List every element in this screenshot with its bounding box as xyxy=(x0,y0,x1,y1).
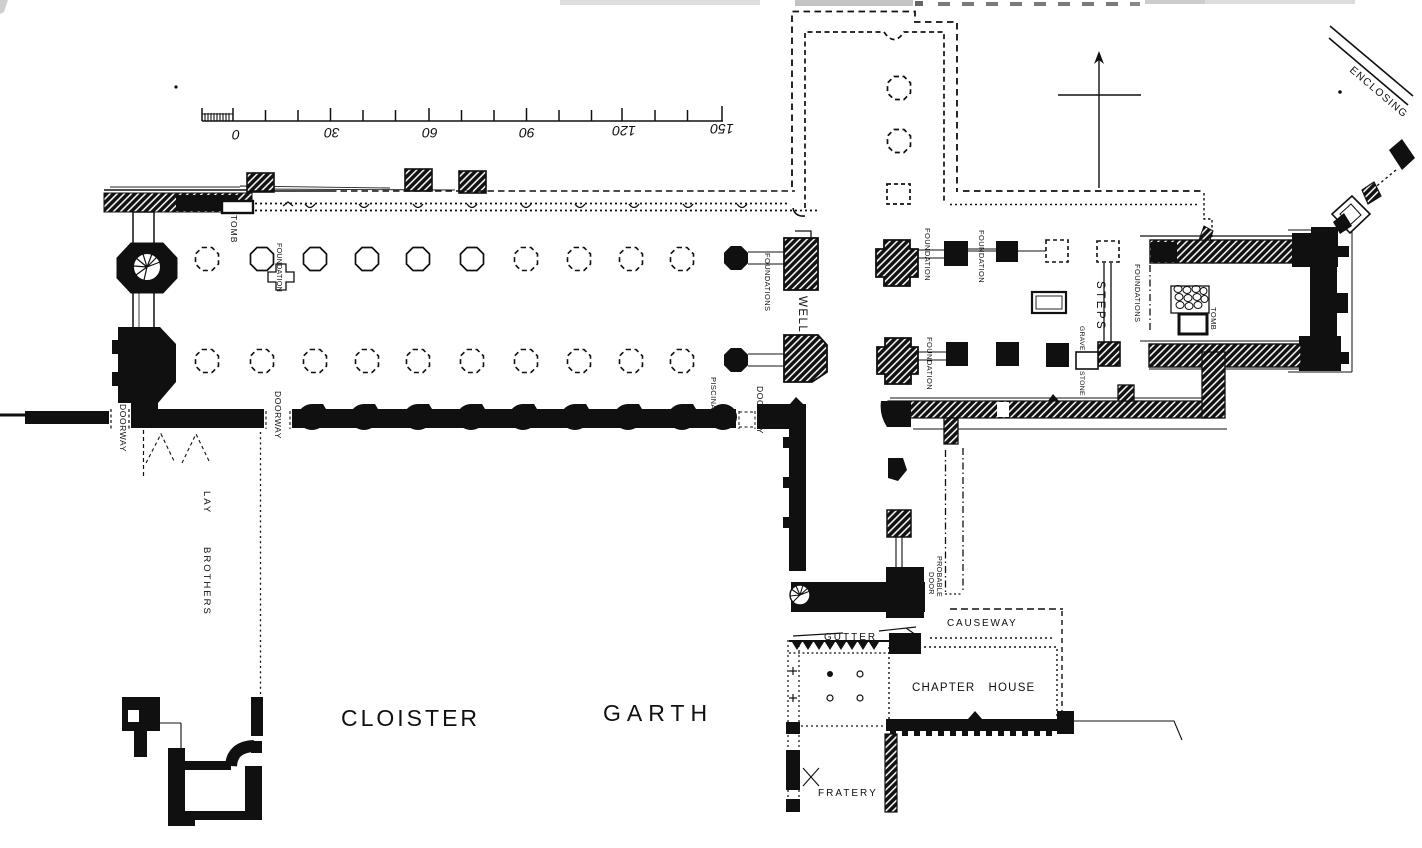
svg-text:STONE: STONE xyxy=(1078,371,1085,396)
svg-text:PISCINA: PISCINA xyxy=(709,377,718,410)
svg-text:120: 120 xyxy=(612,123,636,139)
svg-text:STEPS: STEPS xyxy=(1094,281,1106,331)
svg-text:60: 60 xyxy=(422,125,438,141)
svg-text:FRATERY: FRATERY xyxy=(818,788,878,799)
svg-text:FOUNDATIONS: FOUNDATIONS xyxy=(1133,264,1142,322)
svg-text:150: 150 xyxy=(710,121,734,137)
svg-text:FOUNDATION: FOUNDATION xyxy=(923,228,932,281)
svg-text:LAY: LAY xyxy=(201,491,212,514)
svg-text:90: 90 xyxy=(519,125,535,141)
svg-text:BROTHERS: BROTHERS xyxy=(201,547,212,616)
svg-text:FOUNDATION: FOUNDATION xyxy=(977,230,986,283)
svg-text:DOORWAY: DOORWAY xyxy=(118,404,128,452)
svg-text:TOMB: TOMB xyxy=(229,215,239,243)
svg-text:CLOISTER: CLOISTER xyxy=(341,705,480,731)
svg-text:GRAVE: GRAVE xyxy=(1078,326,1085,351)
svg-text:TOMB: TOMB xyxy=(1209,307,1218,330)
svg-text:FOUNDATIONS: FOUNDATIONS xyxy=(763,253,772,311)
svg-text:DOORWAY: DOORWAY xyxy=(273,391,283,439)
svg-text:DOOR: DOOR xyxy=(927,572,936,595)
svg-text:FOUNDATION: FOUNDATION xyxy=(925,337,934,390)
svg-text:CAUSEWAY: CAUSEWAY xyxy=(947,618,1018,629)
svg-text:GARTH: GARTH xyxy=(603,700,713,726)
svg-text:30: 30 xyxy=(324,125,340,141)
svg-text:WELL: WELL xyxy=(796,296,808,333)
svg-text:0: 0 xyxy=(232,127,240,143)
svg-text:CHAPTER HOUSE: CHAPTER HOUSE xyxy=(912,682,1035,694)
svg-text:FOUNDATION: FOUNDATION xyxy=(275,243,284,292)
